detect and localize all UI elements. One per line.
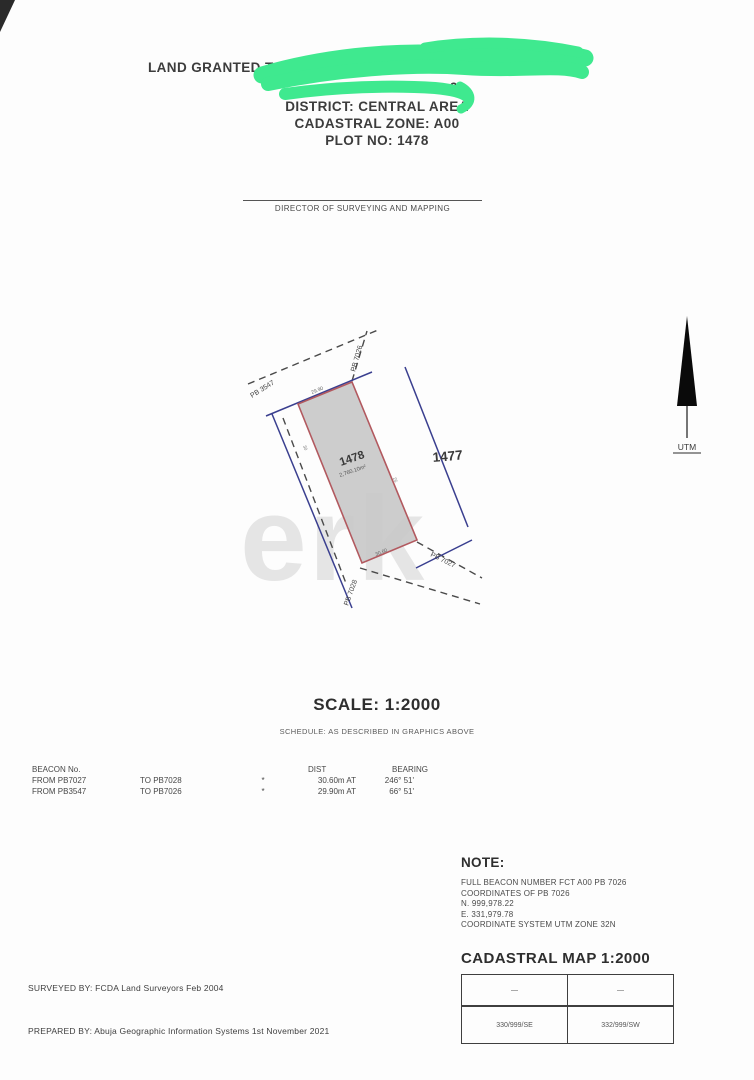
beacon-to: TO PB7026 bbox=[140, 786, 232, 797]
corner-artifact bbox=[0, 0, 20, 34]
beacon-table-header: BEACON No. DIST BEARING bbox=[32, 764, 428, 775]
beacon-from: FROM PB7027 bbox=[32, 775, 140, 786]
sheet-cell-dash-2: — bbox=[568, 975, 674, 1007]
scale-title: SCALE: 1:2000 bbox=[0, 695, 754, 715]
beacon-schedule-table: BEACON No. DIST BEARING FROM PB7027 TO P… bbox=[32, 764, 428, 797]
note-easting: E. 331,979.78 bbox=[461, 910, 627, 921]
cadastral-map-title: CADASTRAL MAP 1:2000 bbox=[461, 950, 650, 967]
signature-line bbox=[243, 200, 482, 201]
utm-label: UTM bbox=[678, 442, 696, 452]
plot-no-line: PLOT NO: 1478 bbox=[0, 133, 754, 148]
sheet-cell-dash-1: — bbox=[462, 975, 568, 1007]
cadastral-document-page: erk LAND GRANTED TO 9 DISTRICT: CENTRAL … bbox=[0, 0, 754, 1080]
note-northing: N. 999,978.22 bbox=[461, 899, 627, 910]
schedule-note: SCHEDULE: AS DESCRIBED IN GRAPHICS ABOVE bbox=[0, 727, 754, 736]
prepared-by-line: PREPARED BY: Abuja Geographic Informatio… bbox=[28, 1026, 329, 1036]
director-title: DIRECTOR OF SURVEYING AND MAPPING bbox=[243, 204, 482, 213]
surveyed-by-line: SURVEYED BY: FCDA Land Surveyors Feb 200… bbox=[28, 983, 224, 993]
sheet-cell-sw: 332/999/SW bbox=[568, 1006, 674, 1044]
edge-mark-left: 30 bbox=[302, 445, 309, 452]
sheet-row-2: 330/999/SE 332/999/SW bbox=[462, 1006, 674, 1044]
dashed-boundary-bottom bbox=[360, 568, 480, 604]
beacon-bearing: 66° 51' bbox=[356, 786, 414, 797]
note-title: NOTE: bbox=[461, 855, 505, 870]
beacon-sep: * bbox=[232, 775, 294, 786]
map-sheet-table: — — 330/999/SE 332/999/SW bbox=[461, 974, 674, 1044]
beacon-to: TO PB7028 bbox=[140, 775, 232, 786]
col-bearing: BEARING bbox=[370, 764, 428, 775]
note-coord-system: COORDINATE SYSTEM UTM ZONE 32N bbox=[461, 920, 627, 931]
sheet-cell-se: 330/999/SE bbox=[462, 1006, 568, 1044]
north-arrow-head bbox=[677, 316, 697, 406]
beacon-from: FROM PB3547 bbox=[32, 786, 140, 797]
beacon-row-1: FROM PB7027 TO PB7028 * 30.60m AT 246° 5… bbox=[32, 775, 428, 786]
redaction-scribble bbox=[240, 30, 610, 120]
north-arrow: UTM bbox=[660, 312, 720, 462]
beacon-dist: 30.60m AT bbox=[294, 775, 356, 786]
beacon-row-2: FROM PB3547 TO PB7026 * 29.90m AT 66° 51… bbox=[32, 786, 428, 797]
col-dist: DIST bbox=[294, 764, 370, 775]
beacon-dist: 29.90m AT bbox=[294, 786, 356, 797]
col-beacon-no: BEACON No. bbox=[32, 764, 140, 775]
note-body: FULL BEACON NUMBER FCT A00 PB 7026 COORD… bbox=[461, 878, 627, 931]
note-coordinates-of: COORDINATES OF PB 7026 bbox=[461, 889, 627, 900]
note-full-beacon: FULL BEACON NUMBER FCT A00 PB 7026 bbox=[461, 878, 627, 889]
plot-number-1477: 1477 bbox=[432, 447, 463, 465]
plot-diagram: PB 3547 PB 7026 PB 7027 PB 7028 29.90 30… bbox=[230, 318, 505, 618]
beacon-label-pb7026: PB 7026 bbox=[350, 345, 364, 373]
beacon-sep: * bbox=[232, 786, 294, 797]
beacon-bearing: 246° 51' bbox=[356, 775, 414, 786]
sheet-row-1: — — bbox=[462, 975, 674, 1007]
